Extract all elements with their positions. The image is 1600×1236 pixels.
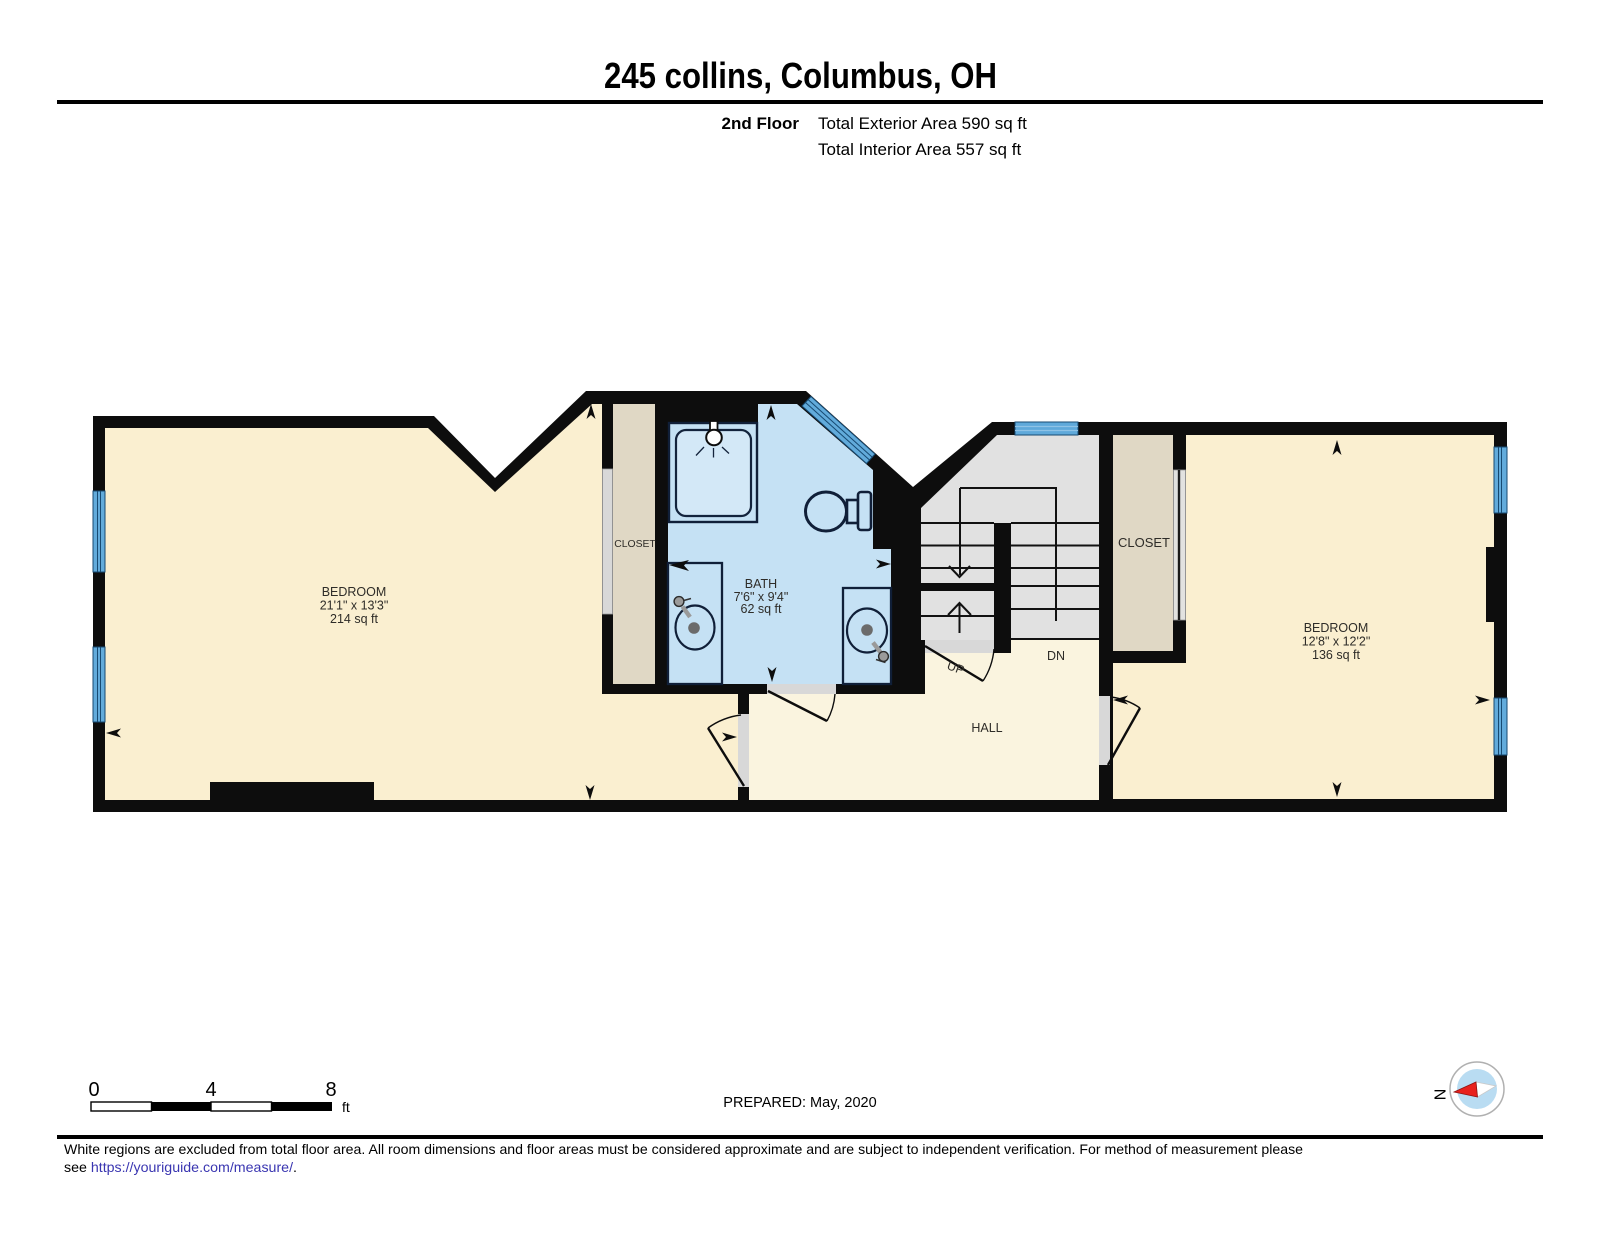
- svg-text:BEDROOM: BEDROOM: [322, 585, 387, 599]
- svg-text:8: 8: [325, 1079, 336, 1101]
- svg-text:see https://youriguide.com/mea: see https://youriguide.com/measure/.: [64, 1159, 297, 1175]
- svg-text:62 sq ft: 62 sq ft: [741, 602, 783, 616]
- svg-text:214 sq ft: 214 sq ft: [330, 612, 378, 626]
- svg-text:245 collins, Columbus, OH: 245 collins, Columbus, OH: [604, 55, 997, 96]
- svg-text:HALL: HALL: [971, 721, 1002, 735]
- svg-text:21'1" x 13'3": 21'1" x 13'3": [320, 599, 389, 613]
- svg-text:0: 0: [88, 1079, 99, 1101]
- svg-text:Total Interior Area 557 sq ft: Total Interior Area 557 sq ft: [818, 140, 1021, 159]
- svg-text:N: N: [1433, 1089, 1450, 1101]
- svg-text:12'8" x 12'2": 12'8" x 12'2": [1302, 635, 1371, 649]
- svg-text:Total Exterior Area 590 sq ft: Total Exterior Area 590 sq ft: [818, 114, 1027, 133]
- svg-text:BATH: BATH: [745, 577, 777, 591]
- svg-text:2nd Floor: 2nd Floor: [722, 114, 800, 133]
- svg-text:136 sq ft: 136 sq ft: [1312, 648, 1360, 662]
- svg-text:CLOSET: CLOSET: [614, 539, 656, 550]
- svg-text:ft: ft: [342, 1099, 350, 1115]
- svg-text:4: 4: [205, 1079, 216, 1101]
- svg-text:BEDROOM: BEDROOM: [1304, 621, 1369, 635]
- svg-text:CLOSET: CLOSET: [1118, 535, 1170, 550]
- svg-text:PREPARED: May, 2020: PREPARED: May, 2020: [723, 1095, 876, 1111]
- svg-text:White regions are excluded fro: White regions are excluded from total fl…: [64, 1141, 1303, 1157]
- svg-text:DN: DN: [1047, 649, 1065, 663]
